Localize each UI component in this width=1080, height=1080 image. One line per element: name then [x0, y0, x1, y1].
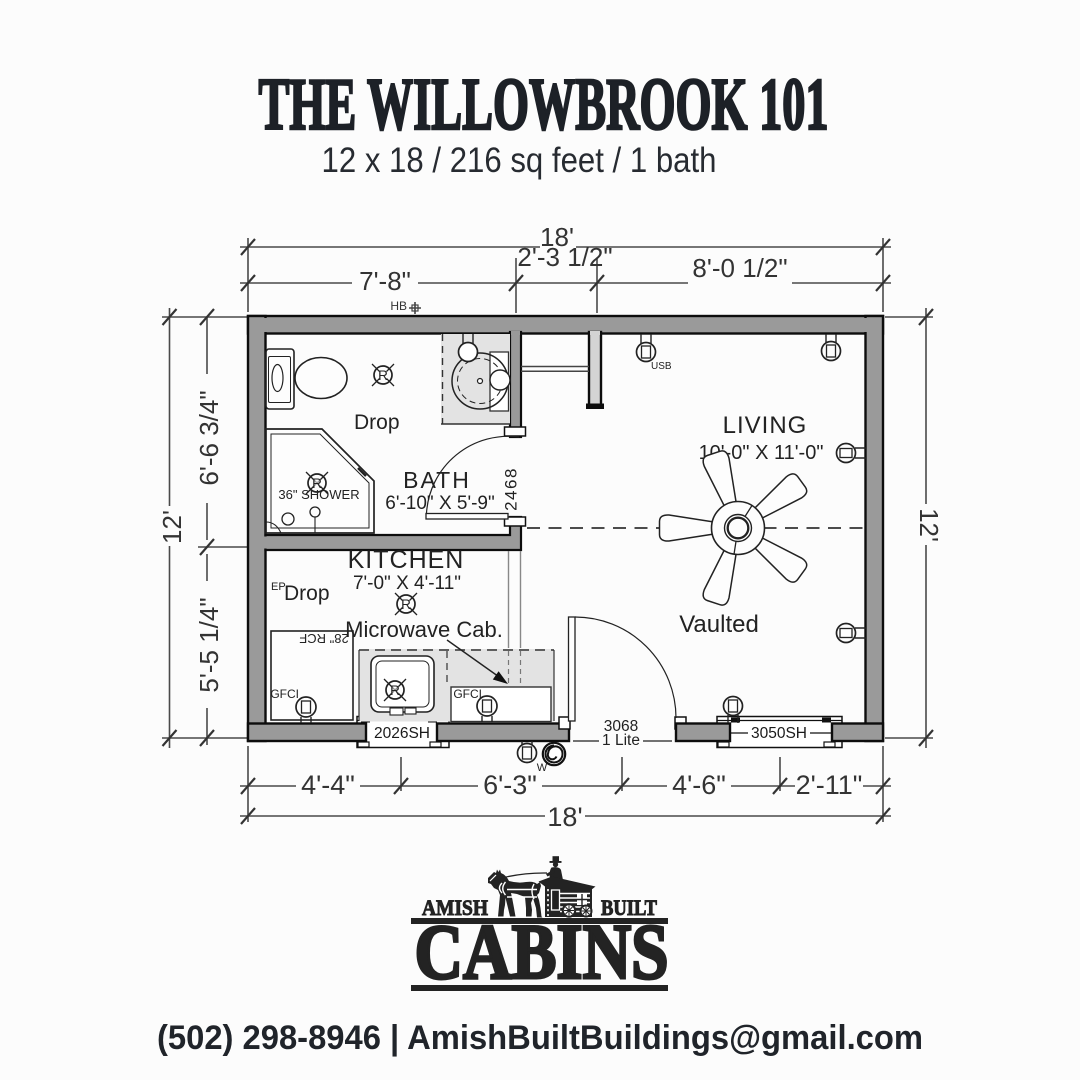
svg-text:28" RCF: 28" RCF — [299, 631, 348, 646]
svg-text:18': 18' — [547, 802, 582, 832]
svg-text:1 Lite: 1 Lite — [602, 732, 640, 749]
svg-text:Drop: Drop — [284, 582, 330, 605]
svg-text:BATH: BATH — [403, 467, 471, 493]
svg-text:4'-6": 4'-6" — [672, 770, 726, 800]
svg-text:LIVING: LIVING — [723, 412, 808, 439]
svg-text:8'-0 1/2": 8'-0 1/2" — [692, 253, 787, 283]
svg-text:W: W — [537, 762, 548, 774]
svg-text:Drop: Drop — [354, 411, 400, 434]
svg-text:GFCI: GFCI — [453, 687, 482, 701]
svg-text:6'-6 3/4": 6'-6 3/4" — [194, 390, 224, 485]
svg-text:Microwave Cab.: Microwave Cab. — [345, 617, 503, 642]
svg-text:USB: USB — [651, 361, 672, 372]
svg-text:GFCI: GFCI — [270, 687, 299, 701]
svg-text:12': 12' — [157, 510, 187, 544]
svg-text:5'-5 1/4": 5'-5 1/4" — [194, 597, 224, 692]
svg-text:6'-10" X 5'-9": 6'-10" X 5'-9" — [385, 493, 494, 514]
svg-text:2026SH: 2026SH — [374, 725, 430, 742]
svg-text:7'-0" X 4'-11": 7'-0" X 4'-11" — [353, 573, 461, 594]
svg-text:12': 12' — [914, 508, 944, 542]
svg-text:3050SH: 3050SH — [751, 725, 807, 742]
svg-text:Vaulted: Vaulted — [679, 611, 759, 638]
svg-text:(502) 298-8946 | AmishBuiltBui: (502) 298-8946 | AmishBuiltBuildings@gma… — [157, 1019, 923, 1057]
svg-text:THE WILLOWBROOK 101: THE WILLOWBROOK 101 — [259, 64, 829, 146]
svg-text:KITCHEN: KITCHEN — [348, 546, 465, 574]
svg-text:CABINS: CABINS — [415, 908, 669, 995]
svg-text:2'-11": 2'-11" — [796, 770, 863, 800]
svg-text:2'-3 1/2": 2'-3 1/2" — [517, 242, 612, 272]
svg-text:36" SHOWER: 36" SHOWER — [278, 487, 359, 502]
svg-text:R: R — [390, 683, 400, 698]
svg-text:7'-8": 7'-8" — [359, 266, 411, 296]
svg-text:HB: HB — [390, 299, 407, 313]
svg-text:12 x 18 / 216 sq feet / 1 bath: 12 x 18 / 216 sq feet / 1 bath — [322, 141, 717, 180]
svg-text:6'-3": 6'-3" — [483, 770, 537, 800]
svg-text:4'-4": 4'-4" — [301, 770, 355, 800]
svg-text:R: R — [401, 597, 411, 612]
svg-text:2468: 2468 — [502, 467, 521, 511]
svg-text:R: R — [378, 368, 388, 383]
